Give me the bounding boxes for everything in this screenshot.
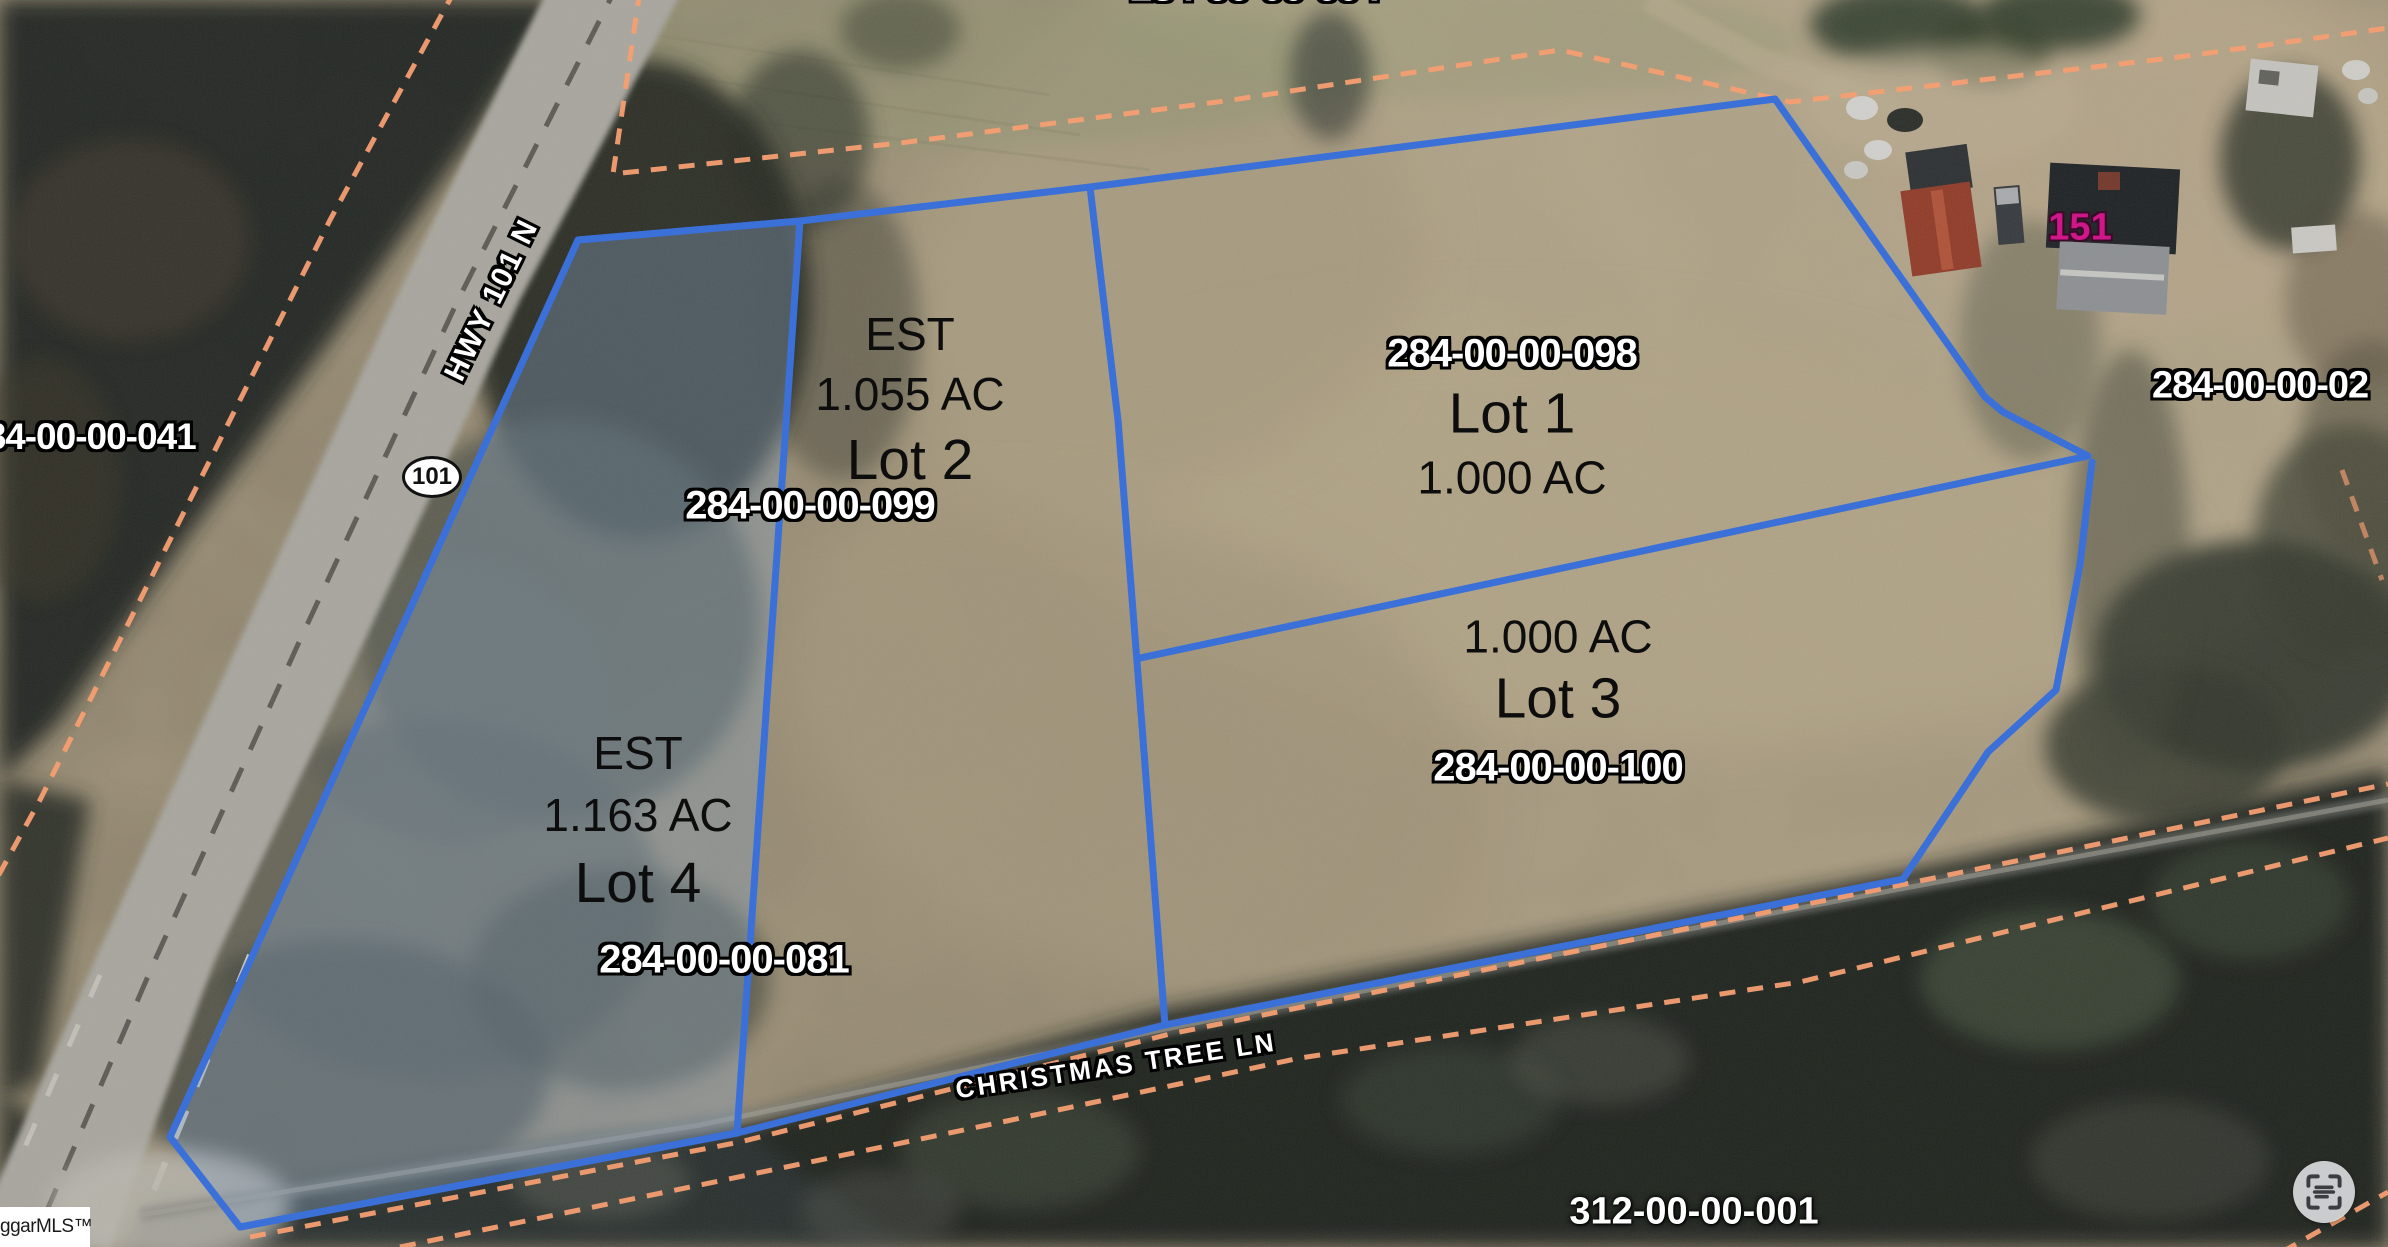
route-101-shield-text: 101 (412, 463, 452, 491)
lot4-est-label: EST (593, 726, 682, 780)
lot3-label-block: 1.000 AC Lot 3 284-00-00-100 (1433, 610, 1682, 791)
lot2-parcel-label: 284-00-00-099 (685, 484, 934, 529)
map-canvas[interactable]: 284-00-00-004 284-00-00-041 284-00-00-02… (0, 0, 2388, 1247)
lot2-label-block: EST 1.055 AC Lot 2 (815, 307, 1004, 493)
parcel-label-left: 284-00-00-041 (0, 416, 196, 458)
lot3-parcel-label: 284-00-00-100 (1433, 746, 1682, 791)
scan-text-button[interactable] (2293, 1161, 2355, 1223)
parcel-label-top-partial: 284-00-00-004 (1130, 0, 1379, 11)
lot1-acreage-label: 1.000 AC (1417, 451, 1606, 505)
house-number-label: 151 (2048, 207, 2111, 250)
route-101-shield: 101 (402, 456, 462, 498)
lot4-acreage-label: 1.163 AC (543, 788, 732, 842)
lot2-acreage-label: 1.055 AC (815, 367, 1004, 421)
lot2-est-label: EST (865, 307, 954, 361)
lot4-parcel-label: 284-00-00-081 (599, 938, 848, 983)
watermark-text: ggarMLS™ (0, 1216, 92, 1238)
lot3-acreage-label: 1.000 AC (1463, 610, 1652, 664)
lot1-label-block: 284-00-00-098 Lot 1 1.000 AC (1387, 332, 1636, 505)
parcel-label-bottom: 312-00-00-001 (1569, 1191, 1818, 1234)
parcel-label-right: 284-00-00-02 (2152, 365, 2368, 408)
lot4-label-block: EST 1.163 AC Lot 4 (543, 726, 732, 916)
lot1-parcel-label: 284-00-00-098 (1387, 332, 1636, 377)
mls-watermark: ggarMLS™ (0, 1207, 90, 1247)
lot1-name-label: Lot 1 (1449, 381, 1576, 447)
scan-text-icon (2299, 1165, 2349, 1219)
lot4-name-label: Lot 4 (575, 850, 702, 916)
lot3-name-label: Lot 3 (1495, 666, 1622, 732)
